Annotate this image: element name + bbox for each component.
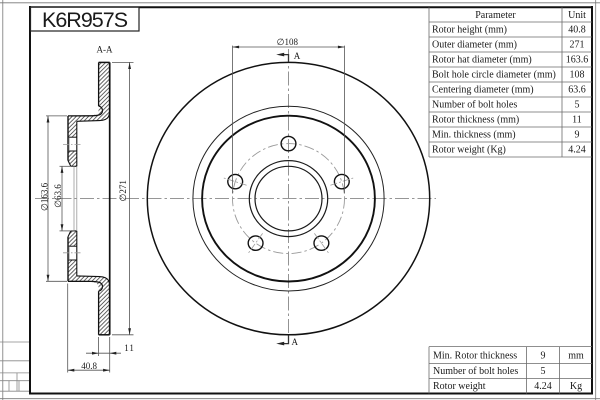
- svg-text:40.8: 40.8: [81, 361, 97, 371]
- svg-text:Bolt hole circle diameter (mm): Bolt hole circle diameter (mm): [432, 70, 556, 81]
- svg-text:163.6: 163.6: [566, 55, 589, 66]
- svg-text:11: 11: [572, 115, 582, 126]
- svg-text:11: 11: [124, 343, 135, 353]
- svg-text:Number of bolt holes: Number of bolt holes: [433, 366, 518, 377]
- svg-text:4.24: 4.24: [534, 381, 552, 392]
- svg-text:A: A: [292, 337, 299, 347]
- svg-text:9: 9: [575, 130, 580, 141]
- svg-text:108: 108: [570, 70, 585, 81]
- svg-text:∅163.6: ∅163.6: [39, 182, 49, 211]
- svg-text:∅63.6: ∅63.6: [53, 184, 63, 208]
- svg-text:Rotor thickness (mm): Rotor thickness (mm): [432, 115, 519, 126]
- svg-text:Outer diameter (mm): Outer diameter (mm): [432, 40, 517, 51]
- svg-text:Rotor weight (Kg): Rotor weight (Kg): [432, 145, 506, 156]
- svg-text:Kg: Kg: [570, 381, 582, 392]
- svg-text:5: 5: [575, 100, 580, 111]
- svg-text:271: 271: [570, 40, 585, 51]
- svg-text:5: 5: [541, 366, 546, 377]
- svg-text:Rotor weight: Rotor weight: [433, 381, 486, 392]
- svg-text:Rotor height (mm): Rotor height (mm): [432, 25, 507, 36]
- svg-text:A: A: [294, 51, 301, 61]
- svg-text:Min. thickness (mm): Min. thickness (mm): [432, 130, 516, 141]
- svg-text:63.6: 63.6: [568, 85, 586, 96]
- svg-text:K6R957S: K6R957S: [42, 8, 128, 32]
- svg-text:A-A: A-A: [97, 45, 113, 55]
- svg-text:9: 9: [541, 351, 546, 362]
- svg-text:∅271: ∅271: [118, 180, 128, 201]
- svg-text:Rotor hat diameter (mm): Rotor hat diameter (mm): [432, 55, 532, 66]
- svg-text:Centering diameter (mm): Centering diameter (mm): [432, 85, 534, 96]
- svg-text:mm: mm: [568, 351, 584, 362]
- svg-text:Min. Rotor thickness: Min. Rotor thickness: [433, 351, 517, 362]
- svg-text:4.24: 4.24: [568, 145, 586, 156]
- svg-text:Number of bolt holes: Number of bolt holes: [432, 100, 517, 111]
- svg-text:∅108: ∅108: [277, 37, 299, 47]
- svg-text:40.8: 40.8: [568, 25, 586, 36]
- svg-text:Unit: Unit: [568, 10, 586, 21]
- svg-text:Parameter: Parameter: [475, 10, 516, 21]
